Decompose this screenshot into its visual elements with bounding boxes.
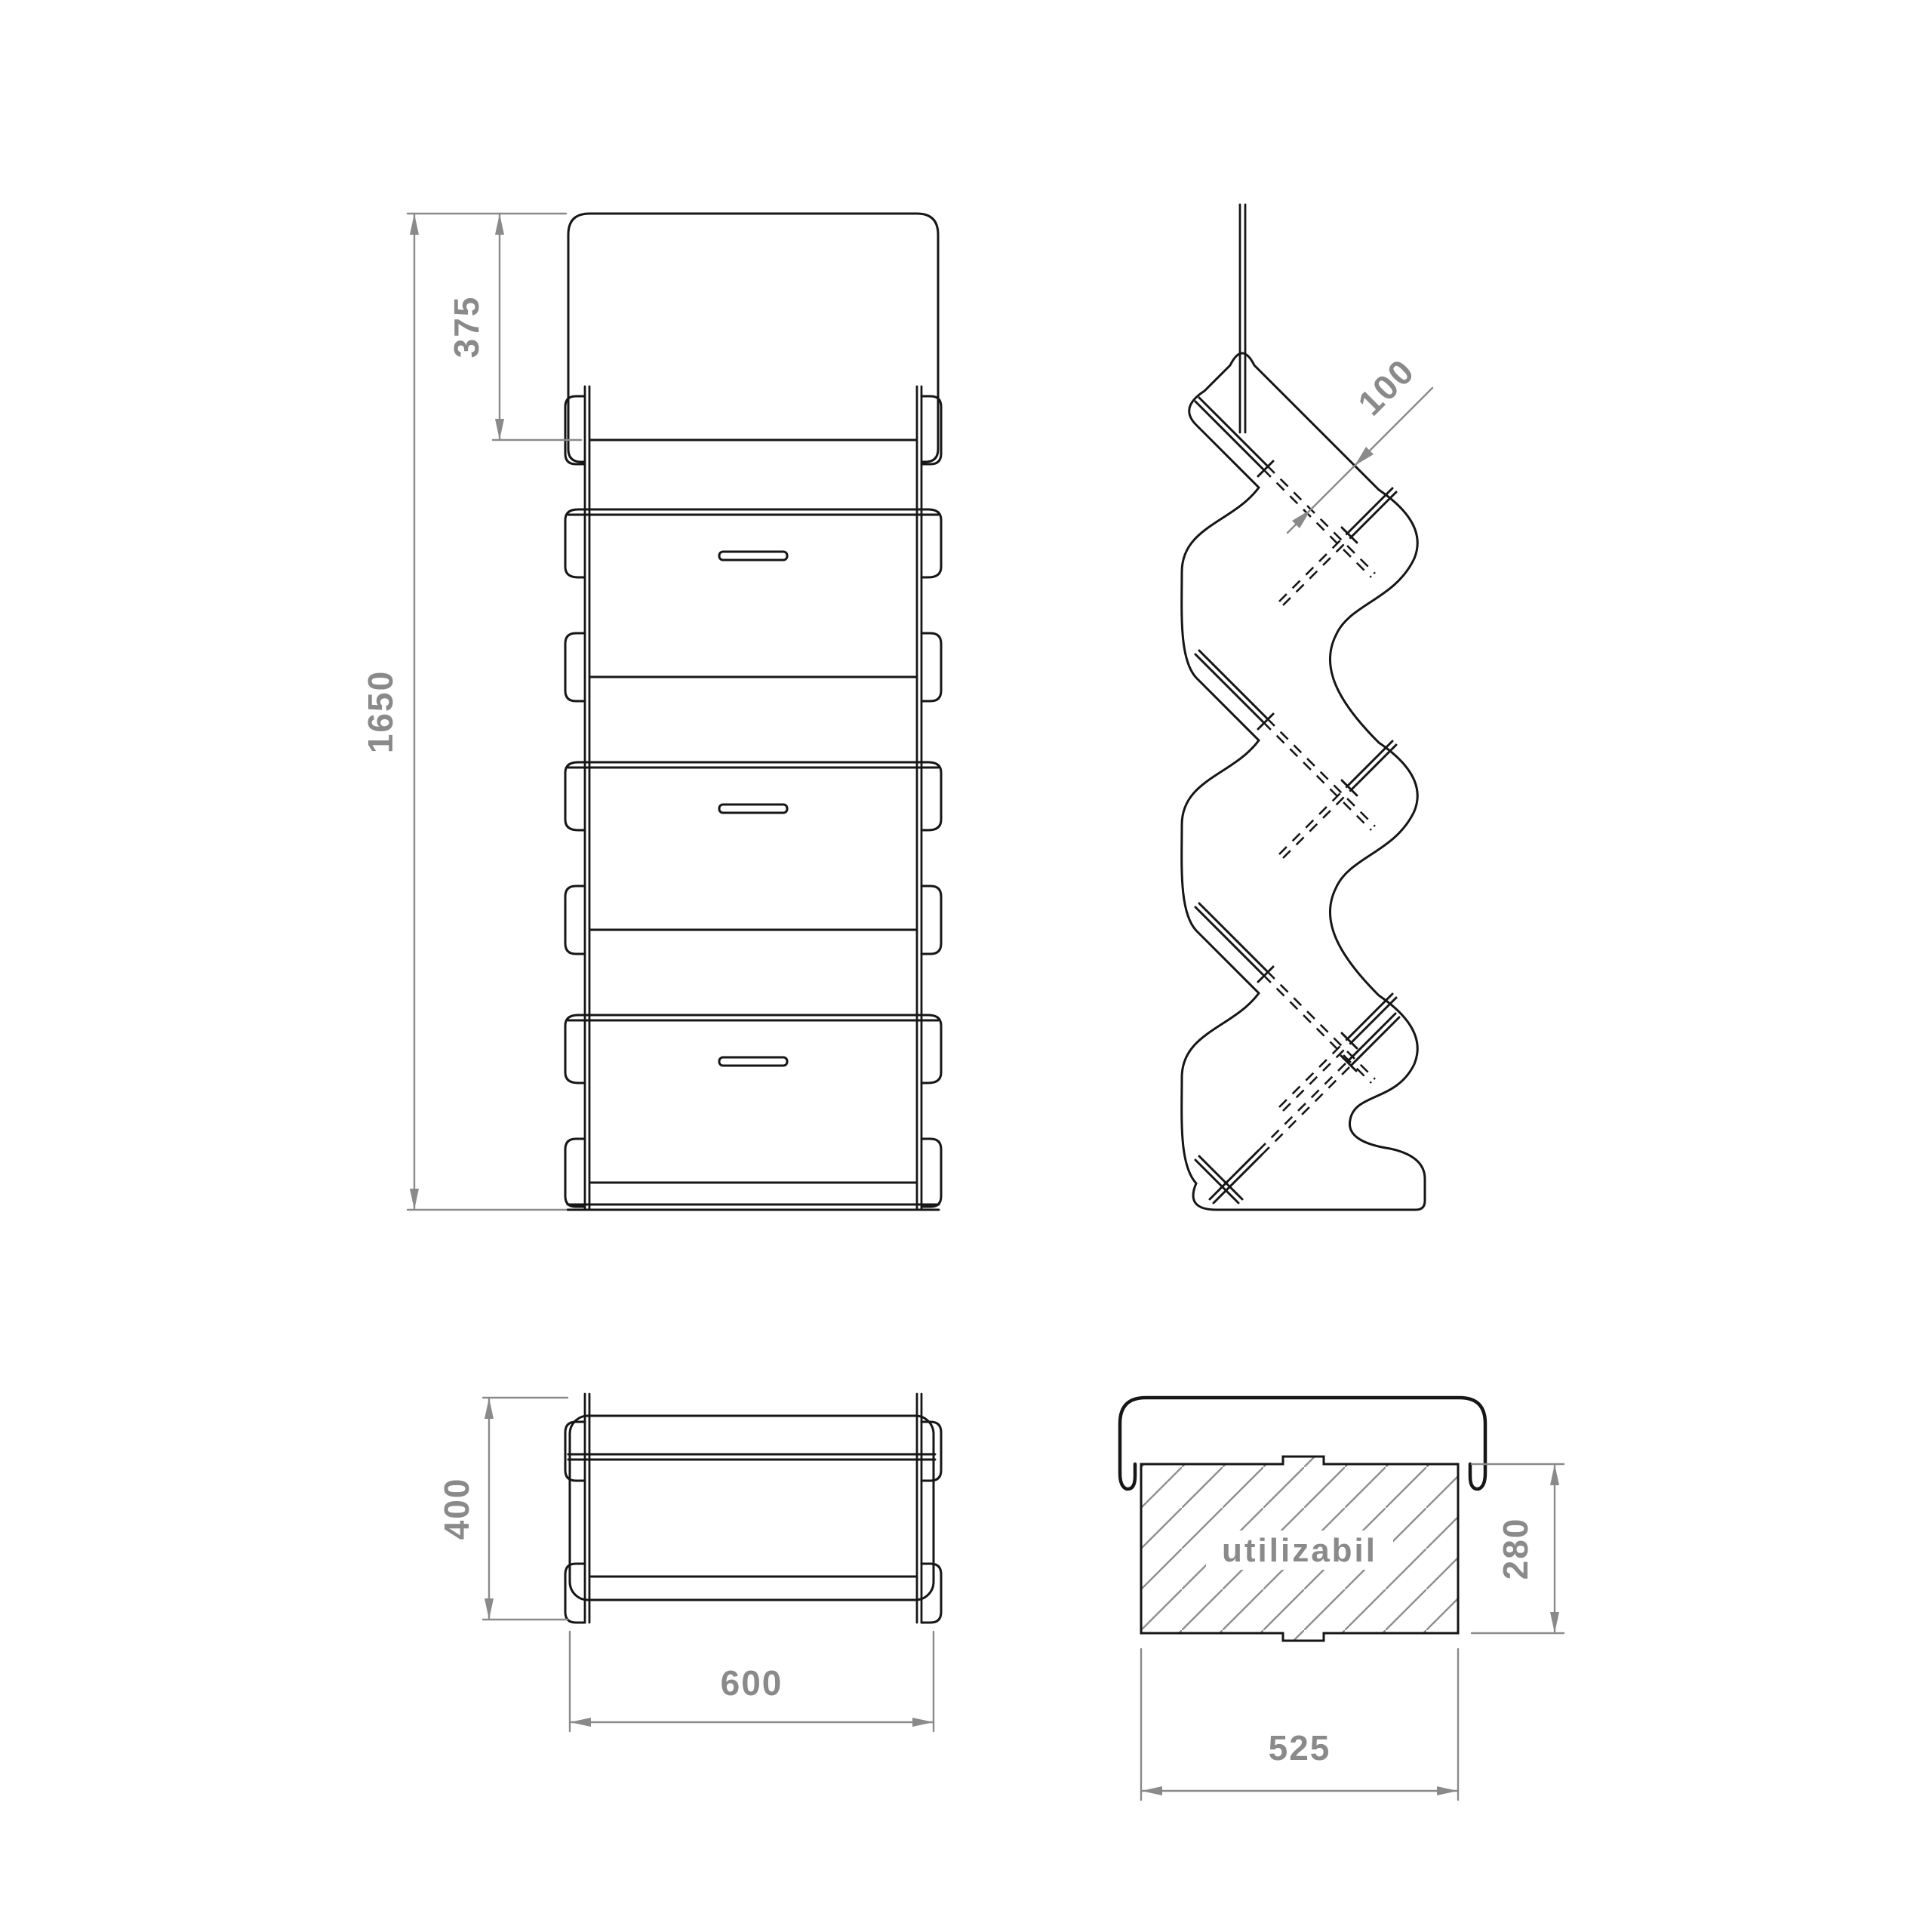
arrow-down-icon	[410, 1189, 419, 1210]
dim-label-total-height: 1650	[361, 670, 400, 753]
top-tab-upper-left	[565, 1422, 585, 1481]
side-shelf-line-1	[1195, 398, 1375, 577]
side-outline	[1182, 353, 1425, 1210]
side-flap-line-2	[1279, 741, 1396, 858]
dim-label-pocket-opening: 100	[1350, 351, 1422, 423]
dim-width: 600	[570, 1632, 934, 1731]
top-tab-lower-right	[921, 1564, 941, 1623]
top-outline	[570, 1416, 934, 1600]
side-shelf-line-2	[1195, 651, 1375, 830]
arrow-up-icon	[485, 1398, 494, 1419]
arrow-right-icon	[912, 1718, 934, 1727]
side-view	[1182, 205, 1425, 1210]
front-module-2	[565, 762, 941, 954]
side-shelf-line-3	[1195, 903, 1375, 1083]
dim-label-width: 600	[721, 1663, 783, 1703]
side-wall-bracket	[1240, 205, 1245, 432]
dim-label-usable-height: 280	[1496, 1518, 1535, 1580]
front-module-3	[565, 1015, 941, 1207]
section-usable-label: utilizabil	[1222, 1532, 1377, 1569]
dim-label-top-offset: 375	[447, 296, 486, 358]
side-flap-line-1	[1279, 488, 1396, 605]
technical-drawing: utilizabil 1650 375 100 400	[0, 0, 1932, 1932]
front-view	[565, 214, 941, 1210]
dim-top-offset: 375	[447, 214, 581, 440]
dim-pocket-opening: 100	[1287, 351, 1432, 533]
side-flap-line-3	[1279, 994, 1396, 1111]
front-module-1	[565, 509, 941, 701]
section-view: utilizabil	[1120, 1398, 1485, 1641]
arrow-down-icon	[495, 419, 504, 440]
arrow-up-icon	[495, 214, 504, 235]
top-tab-upper-right	[921, 1422, 941, 1481]
dim-usable-height: 280	[1472, 1464, 1564, 1633]
arrow-left-icon	[570, 1718, 591, 1727]
dim-label-depth: 400	[437, 1478, 476, 1540]
front-top-panel	[568, 214, 938, 462]
dim-label-usable-width: 525	[1269, 1728, 1331, 1767]
dim-depth: 400	[437, 1398, 568, 1620]
arrow-down-icon	[1550, 1612, 1559, 1633]
arrow-right-icon	[1437, 1786, 1458, 1795]
arrow-left-icon	[1141, 1786, 1162, 1795]
arrow-down-icon	[485, 1598, 494, 1620]
dim-usable-width: 525	[1141, 1649, 1458, 1800]
top-side-rails	[585, 1394, 921, 1623]
dim-total-height: 1650	[361, 214, 566, 1210]
arrow-up-icon	[410, 214, 419, 235]
side-bottom-ramp	[1195, 1014, 1399, 1203]
arrow-up-icon	[1550, 1464, 1559, 1485]
top-view	[565, 1394, 941, 1623]
